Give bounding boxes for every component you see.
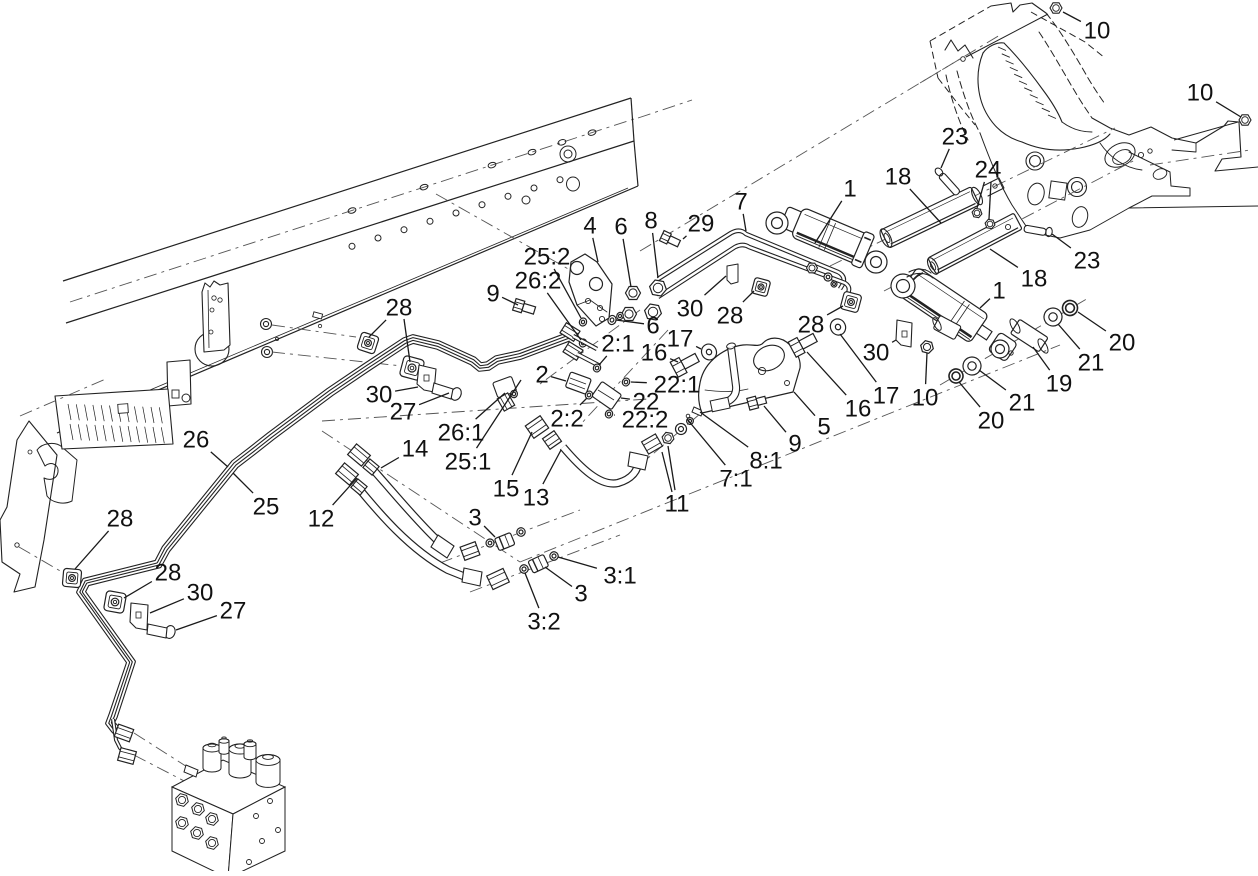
svg-text:27: 27	[390, 399, 417, 426]
svg-text:6: 6	[646, 313, 659, 340]
svg-text:30: 30	[677, 296, 704, 323]
svg-text:30: 30	[366, 382, 393, 409]
svg-text:3:1: 3:1	[603, 563, 636, 590]
svg-text:21: 21	[1009, 390, 1036, 417]
svg-text:8:1: 8:1	[749, 448, 782, 475]
svg-text:30: 30	[187, 580, 214, 607]
svg-text:23: 23	[1074, 248, 1101, 275]
svg-text:4: 4	[583, 213, 596, 240]
svg-text:12: 12	[308, 506, 335, 533]
svg-text:9: 9	[486, 281, 499, 308]
svg-text:28: 28	[717, 303, 744, 330]
svg-text:24: 24	[975, 157, 1002, 184]
svg-text:3:2: 3:2	[527, 609, 560, 636]
svg-text:22:1: 22:1	[654, 372, 701, 399]
svg-text:25: 25	[253, 494, 280, 521]
svg-text:30: 30	[863, 340, 890, 367]
svg-text:1: 1	[843, 176, 856, 203]
svg-text:8: 8	[644, 208, 657, 235]
svg-text:17: 17	[667, 326, 694, 353]
svg-text:18: 18	[885, 164, 912, 191]
svg-text:5: 5	[817, 414, 830, 441]
svg-text:28: 28	[798, 312, 825, 339]
svg-text:2:2: 2:2	[550, 406, 583, 433]
svg-text:2: 2	[535, 362, 548, 389]
svg-text:19: 19	[1046, 371, 1073, 398]
svg-text:26:1: 26:1	[438, 420, 485, 447]
svg-text:20: 20	[1109, 330, 1136, 357]
svg-text:15: 15	[493, 476, 520, 503]
svg-text:6: 6	[614, 214, 627, 241]
svg-text:2:1: 2:1	[601, 331, 634, 358]
svg-text:11: 11	[665, 491, 690, 518]
svg-text:25:2: 25:2	[524, 244, 571, 271]
svg-text:7: 7	[734, 189, 747, 216]
svg-text:28: 28	[155, 560, 182, 587]
svg-text:14: 14	[402, 436, 429, 463]
svg-text:29: 29	[688, 211, 715, 238]
svg-text:17: 17	[873, 383, 900, 410]
svg-text:28: 28	[107, 506, 134, 533]
svg-text:27: 27	[220, 598, 247, 625]
svg-text:20: 20	[978, 408, 1005, 435]
svg-text:10: 10	[1187, 80, 1214, 107]
svg-text:7:1: 7:1	[719, 466, 752, 493]
svg-text:28: 28	[386, 295, 413, 322]
svg-text:16: 16	[845, 396, 872, 423]
svg-text:3: 3	[468, 505, 481, 532]
svg-text:10: 10	[912, 385, 939, 412]
svg-text:16: 16	[641, 340, 668, 367]
svg-text:1: 1	[992, 278, 1005, 305]
svg-text:23: 23	[942, 124, 969, 151]
svg-text:10: 10	[1084, 18, 1111, 45]
svg-text:26:2: 26:2	[515, 268, 562, 295]
svg-text:3: 3	[574, 581, 587, 608]
svg-text:21: 21	[1078, 350, 1105, 377]
svg-text:18: 18	[1021, 266, 1048, 293]
svg-text:9: 9	[788, 431, 801, 458]
svg-text:13: 13	[523, 485, 550, 512]
svg-text:25:1: 25:1	[445, 449, 492, 476]
svg-text:22:2: 22:2	[622, 407, 669, 434]
svg-text:26: 26	[183, 427, 210, 454]
